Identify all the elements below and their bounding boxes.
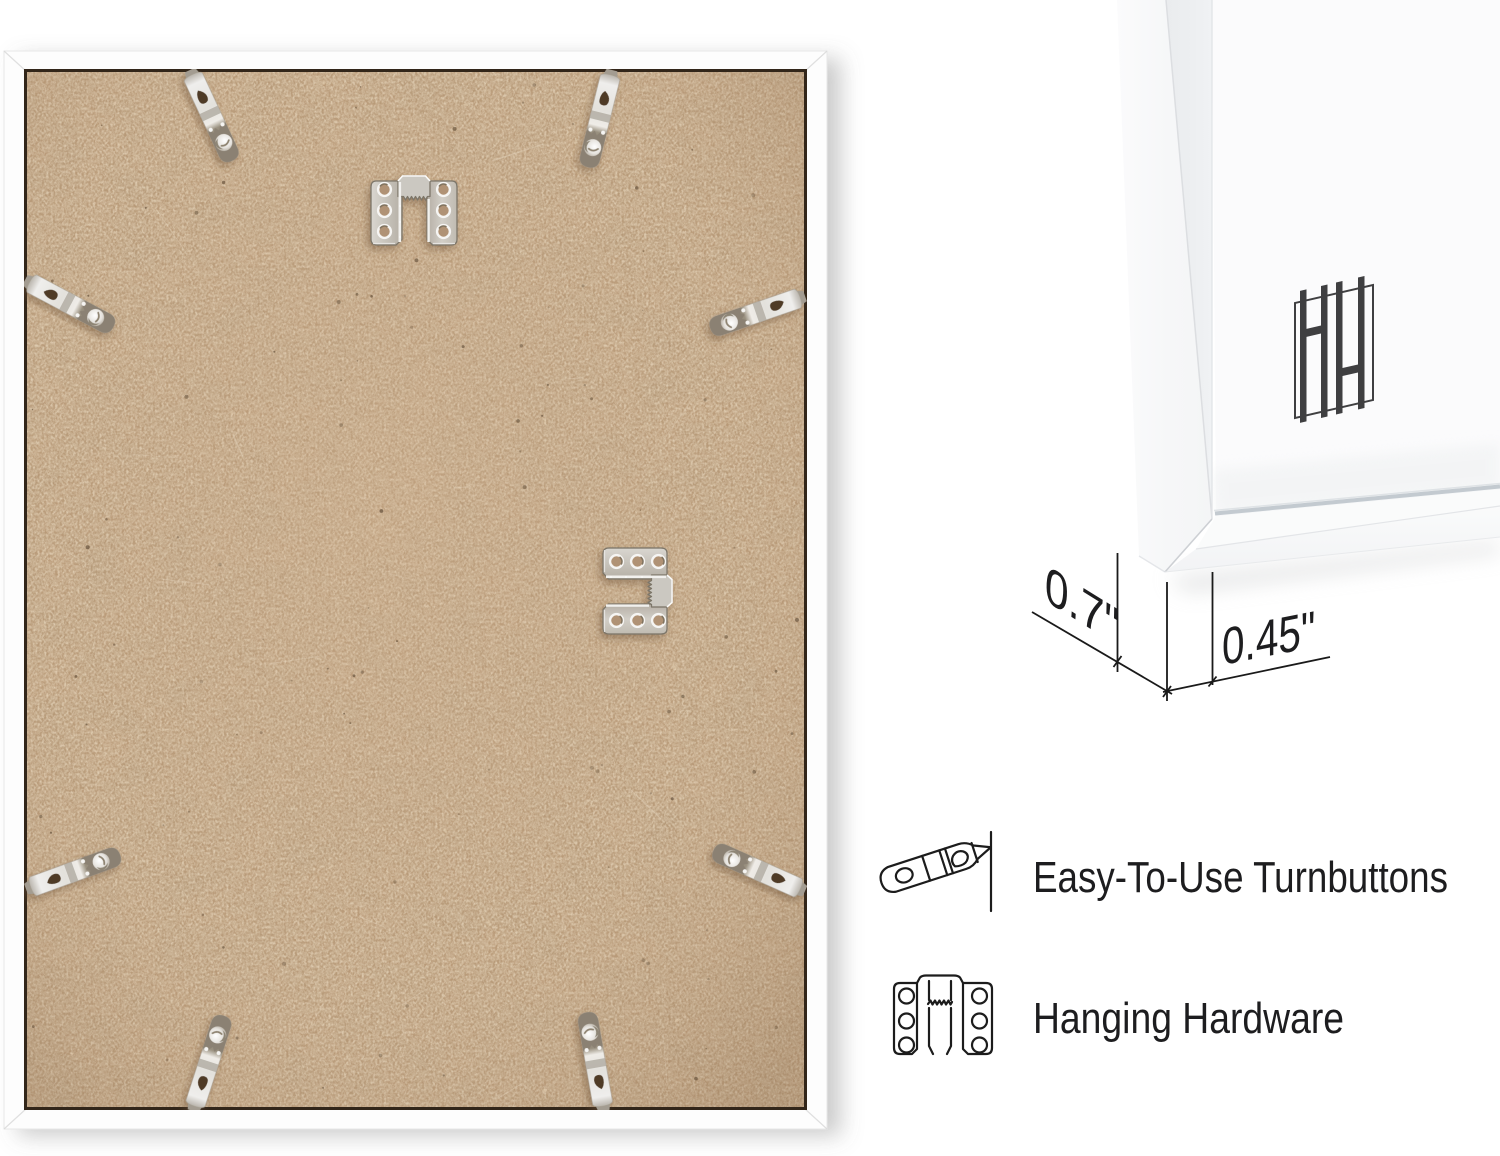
svg-text:Hanging Hardware: Hanging Hardware bbox=[1033, 994, 1344, 1043]
svg-text:Easy-To-Use Turnbuttons: Easy-To-Use Turnbuttons bbox=[1033, 853, 1448, 902]
